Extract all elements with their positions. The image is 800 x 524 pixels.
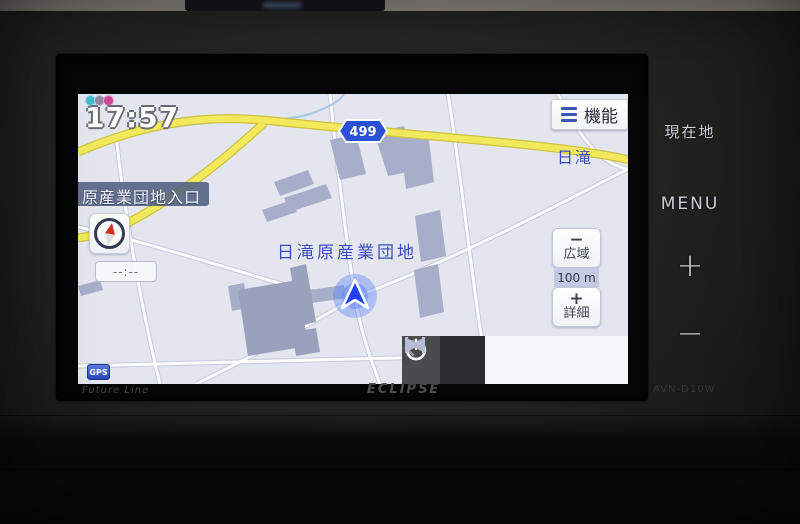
gps-status-badge: GPS: [87, 364, 110, 380]
route-shield: 499: [339, 120, 387, 142]
map-scale-value: 100 m: [554, 268, 599, 287]
hard-button-minus[interactable]: −: [652, 314, 728, 352]
buildings-dark: [238, 264, 320, 356]
hard-button-current-location[interactable]: 現在地: [652, 121, 728, 142]
dashboard-top-strip: [0, 0, 800, 11]
hard-button-menu[interactable]: MENU: [652, 194, 728, 214]
brand-logo: ECLIPSE: [367, 382, 440, 397]
compass-icon: [94, 218, 125, 249]
zoom-in-label: 詳細: [563, 306, 589, 322]
map-area-label-right: 日滝: [557, 144, 593, 168]
function-menu-label: 機能: [584, 102, 618, 127]
hard-button-plus[interactable]: +: [652, 246, 728, 284]
unit-bottom-shadow: [0, 411, 800, 524]
scale-widget: − 広域 100 m + 詳細: [552, 228, 601, 327]
zoom-in-button[interactable]: + 詳細: [552, 287, 601, 327]
zoom-out-button[interactable]: − 広域: [552, 228, 601, 268]
photo-background: 499 17:57 機能: [0, 0, 800, 524]
map-viewport[interactable]: 499 17:57 機能: [78, 94, 628, 384]
model-label: AVN-D10W: [653, 384, 715, 395]
power-button[interactable]: [440, 336, 485, 384]
bezel-seam-lower: [0, 469, 800, 470]
dashboard-glint: [263, 2, 301, 8]
minus-icon: −: [569, 233, 583, 247]
bottom-soft-key-bar: [402, 336, 628, 384]
vehicle-position-marker: [333, 274, 377, 318]
bezel-seam: [0, 415, 800, 416]
head-unit: 499 17:57 機能: [0, 11, 800, 524]
eta-display: --:--: [95, 261, 157, 282]
hamburger-icon: [561, 104, 577, 125]
screen: 499 17:57 機能: [56, 54, 648, 401]
function-menu-button[interactable]: 機能: [551, 99, 628, 130]
plus-icon: +: [569, 292, 583, 306]
series-logo: Future Line: [82, 385, 149, 396]
zoom-out-label: 広域: [563, 247, 589, 263]
compass-button[interactable]: [89, 213, 130, 254]
map-area-label: 日滝原産業団地: [277, 238, 417, 263]
skip-forward-icon[interactable]: [402, 336, 428, 354]
route-shield-number: 499: [349, 125, 376, 140]
media-controls: [485, 336, 628, 384]
road-entrance-banner: 原産業団地入口: [78, 182, 209, 206]
clock: 17:57: [85, 101, 179, 134]
